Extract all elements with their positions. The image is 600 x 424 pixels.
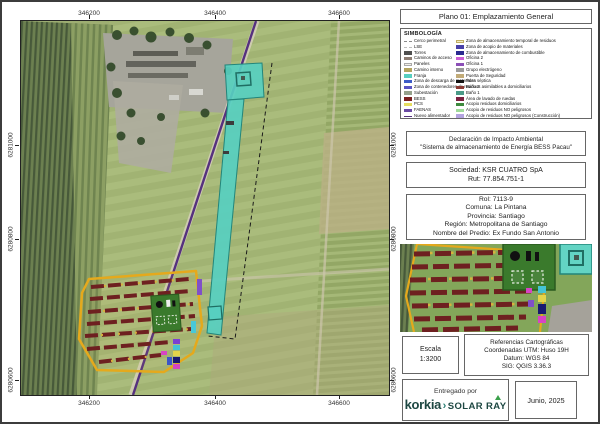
legend-item-label: Paneles [414, 62, 430, 66]
legend-swatch [404, 109, 412, 113]
axis-tick [89, 15, 90, 19]
company-rut: Rut: 77.854.751-1 [407, 175, 585, 185]
legend-swatch [404, 103, 412, 107]
scale-label: Escala [403, 345, 458, 355]
axis-label: 346600 [328, 400, 350, 407]
legend: SIMBOLOGÍA Cerco perimetral LSE [400, 28, 592, 119]
legend-swatch [456, 68, 464, 72]
legend-item-label: Puerta de Seguridad [466, 74, 505, 78]
legend-item-label: PCS [414, 102, 423, 106]
legend-item-label: Acopio de residuos NO peligrosos (Constr… [466, 114, 560, 118]
axis-label: 346200 [78, 400, 100, 407]
legend-item-label: Torres [414, 51, 426, 55]
legend-item-label: Área de lavado de ruedas [466, 97, 515, 101]
declaration-line2: "Sistema de almacenamiento de Energía BE… [407, 144, 585, 152]
axis-tick [390, 239, 394, 240]
facilities-block [151, 294, 181, 332]
legend-item: Nuevo alimentador [404, 113, 456, 119]
legend-column-right: Zona de almacenamiento temporal de resid… [456, 39, 588, 120]
legend-swatch [456, 86, 464, 90]
references-box: Referencias Cartográficas Coordenadas UT… [464, 334, 589, 376]
property-box: Rol: 7113-9 Comuna: La Pintana Provincia… [406, 194, 586, 240]
legend-item-label: Baño 1 [466, 91, 480, 95]
legend-item-label: Baño 2 [466, 85, 480, 89]
axis-tick [339, 395, 340, 399]
legend-swatch [456, 103, 464, 107]
legend-item-label: FAENAS [414, 108, 431, 112]
inset-facilities-block [503, 244, 555, 290]
date-box: Junio, 2025 [515, 381, 577, 419]
declaration-line1: Declaración de Impacto Ambiental [407, 136, 585, 144]
legend-item-label: Zona de almacenamiento temporal de resid… [466, 39, 556, 43]
axis-label: 6280800 [8, 226, 15, 251]
info-panel: Plano 01: Emplazamiento General SIMBOLOG… [398, 2, 598, 424]
legend-item-label: Caminos de acceso [414, 56, 452, 60]
legend-columns: Cerco perimetral LSE Torres [404, 39, 588, 120]
legend-swatch [456, 97, 464, 101]
legend-swatch [404, 97, 412, 101]
satellite-map-canvas [21, 21, 389, 395]
legend-item-label: Poza séptica [466, 79, 491, 83]
legend-swatch [404, 51, 412, 55]
pv-plant-area [79, 271, 202, 372]
legend-item-label: Zona de almacenamiento de combustible [466, 51, 545, 55]
plan-sheet: 346200 346400 346600 346200 346400 34660… [0, 0, 600, 424]
solarray-text: SOLAR RAY [448, 401, 507, 412]
legend-item-label: LSE [414, 45, 422, 49]
legend-item-label: Grupo electrógeno [466, 68, 502, 72]
solarray-wordmark: SOLAR RAY [448, 401, 507, 412]
property-rol: Rol: 7113-9 [407, 196, 585, 205]
inset-detail-map [400, 244, 592, 332]
axis-tick [89, 395, 90, 399]
axis-label: 6280600 [8, 367, 15, 392]
axis-tick [339, 15, 340, 19]
korkia-wordmark: korkia [405, 397, 442, 412]
legend-item: Acopio de residuos NO peligrosos (Constr… [456, 113, 588, 119]
legend-item-label: BESS [414, 97, 425, 101]
axis-tick [215, 15, 216, 19]
legend-swatch [456, 45, 464, 49]
scale-box: Escala 1:3200 [402, 336, 459, 374]
chevron-separator-icon: › [443, 400, 447, 412]
legend-item-label: Subestación [414, 91, 438, 95]
declaration-box: Declaración de Impacto Ambiental "Sistem… [406, 131, 586, 156]
company-box: Sociedad: KSR CUATRO SpA Rut: 77.854.751… [406, 162, 586, 188]
legend-swatch [456, 57, 464, 61]
scale-value: 1:3200 [403, 355, 458, 365]
references-datum: Datum: WGS 84 [465, 355, 588, 363]
legend-swatch [456, 91, 464, 95]
legend-swatch [404, 68, 412, 72]
legend-swatch [404, 80, 412, 84]
references-utm: Coordenadas UTM: Huso 19H [465, 347, 588, 355]
legend-item-label: Camino interno [414, 68, 443, 72]
legend-swatch [404, 91, 412, 95]
legend-item-label: Oficina 1 [466, 62, 483, 66]
inset-franja-block [560, 244, 592, 274]
legend-swatch [404, 57, 412, 61]
legend-swatch [456, 80, 464, 84]
legend-swatch [456, 51, 464, 55]
plan-title: Plano 01: Emplazamiento General [400, 9, 592, 24]
references-title: Referencias Cartográficas [465, 339, 588, 347]
axis-tick [15, 145, 19, 146]
axis-tick [215, 395, 216, 399]
legend-item-label: Oficina 2 [466, 56, 483, 60]
plan-title-text: Plano 01: Emplazamiento General [439, 12, 553, 21]
korkia-solarray-logo: korkia › SOLAR RAY [405, 397, 507, 412]
axis-tick [15, 239, 19, 240]
axis-tick [390, 380, 394, 381]
legend-item-label: Acopio residuos domiciliarios [466, 102, 521, 106]
property-region: Región: Metropolitana de Santiago [407, 221, 585, 230]
legend-swatch [456, 114, 464, 118]
delivered-by-box: Entregado por korkia › SOLAR RAY [402, 379, 509, 421]
property-predio: Nombre del Predio: Ex Fundo San Antonio [407, 230, 585, 239]
property-comuna: Comuna: La Pintana [407, 204, 585, 213]
date-value: Junio, 2025 [527, 396, 564, 405]
legend-title: SIMBOLOGÍA [404, 31, 588, 37]
legend-swatch [404, 41, 412, 42]
company-name: Sociedad: KSR CUATRO SpA [407, 166, 585, 176]
legend-item-label: Acopio de residuos NO peligrosos [466, 108, 531, 112]
axis-label: 6281000 [8, 132, 15, 157]
legend-swatch [456, 109, 464, 113]
legend-swatch [404, 63, 412, 67]
legend-item-label: Nuevo alimentador [414, 114, 450, 118]
legend-swatch [404, 116, 412, 117]
legend-swatch [404, 86, 412, 90]
axis-tick [15, 380, 19, 381]
legend-swatch [404, 74, 412, 78]
legend-item-label: Cerco perimetral [414, 39, 446, 43]
axis-label: 346400 [204, 400, 226, 407]
tree-icon [495, 395, 501, 400]
legend-item-label: Zona de acopio de materiales [466, 45, 523, 49]
legend-swatch [456, 40, 464, 44]
references-sig: SIG: QGIS 3.36.3 [465, 363, 588, 371]
legend-swatch [456, 63, 464, 67]
legend-column-left: Cerco perimetral LSE Torres [404, 39, 456, 120]
legend-item-label: Franja [414, 74, 426, 78]
delivered-by-label: Entregado por [434, 388, 477, 395]
legend-swatch [404, 47, 412, 48]
legend-swatch [456, 74, 464, 78]
satellite-map [20, 20, 390, 396]
property-provincia: Provincia: Santiago [407, 213, 585, 222]
axis-tick [390, 145, 394, 146]
